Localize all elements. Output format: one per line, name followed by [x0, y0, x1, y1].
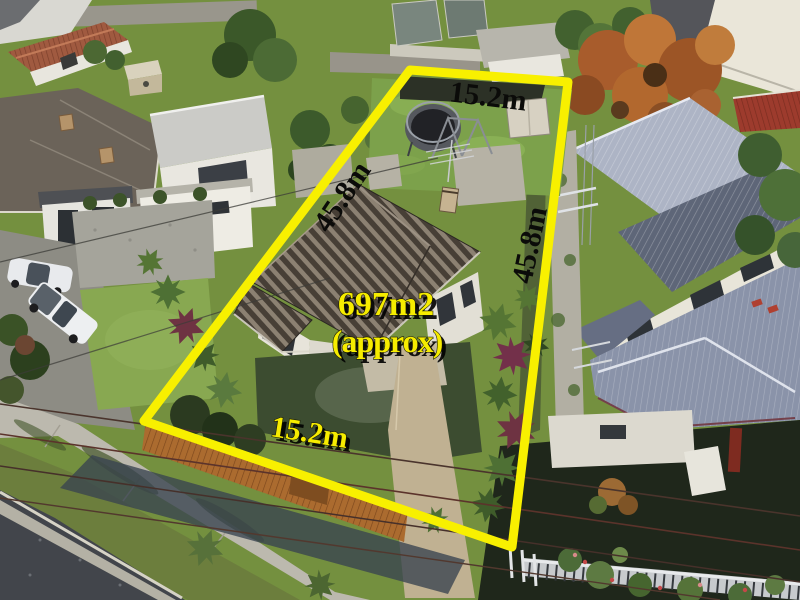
aerial-scene: 15.2m 45.8m 45.8m 697m2 697m2 (approx) (…	[0, 0, 800, 600]
area-label: 697m2	[338, 286, 434, 323]
chimney	[439, 187, 458, 213]
aerial-property-photo: 15.2m 45.8m 45.8m 697m2 697m2 (approx) (…	[0, 0, 800, 600]
area-qualifier-label: (approx)	[332, 323, 443, 359]
red-post	[728, 428, 742, 473]
